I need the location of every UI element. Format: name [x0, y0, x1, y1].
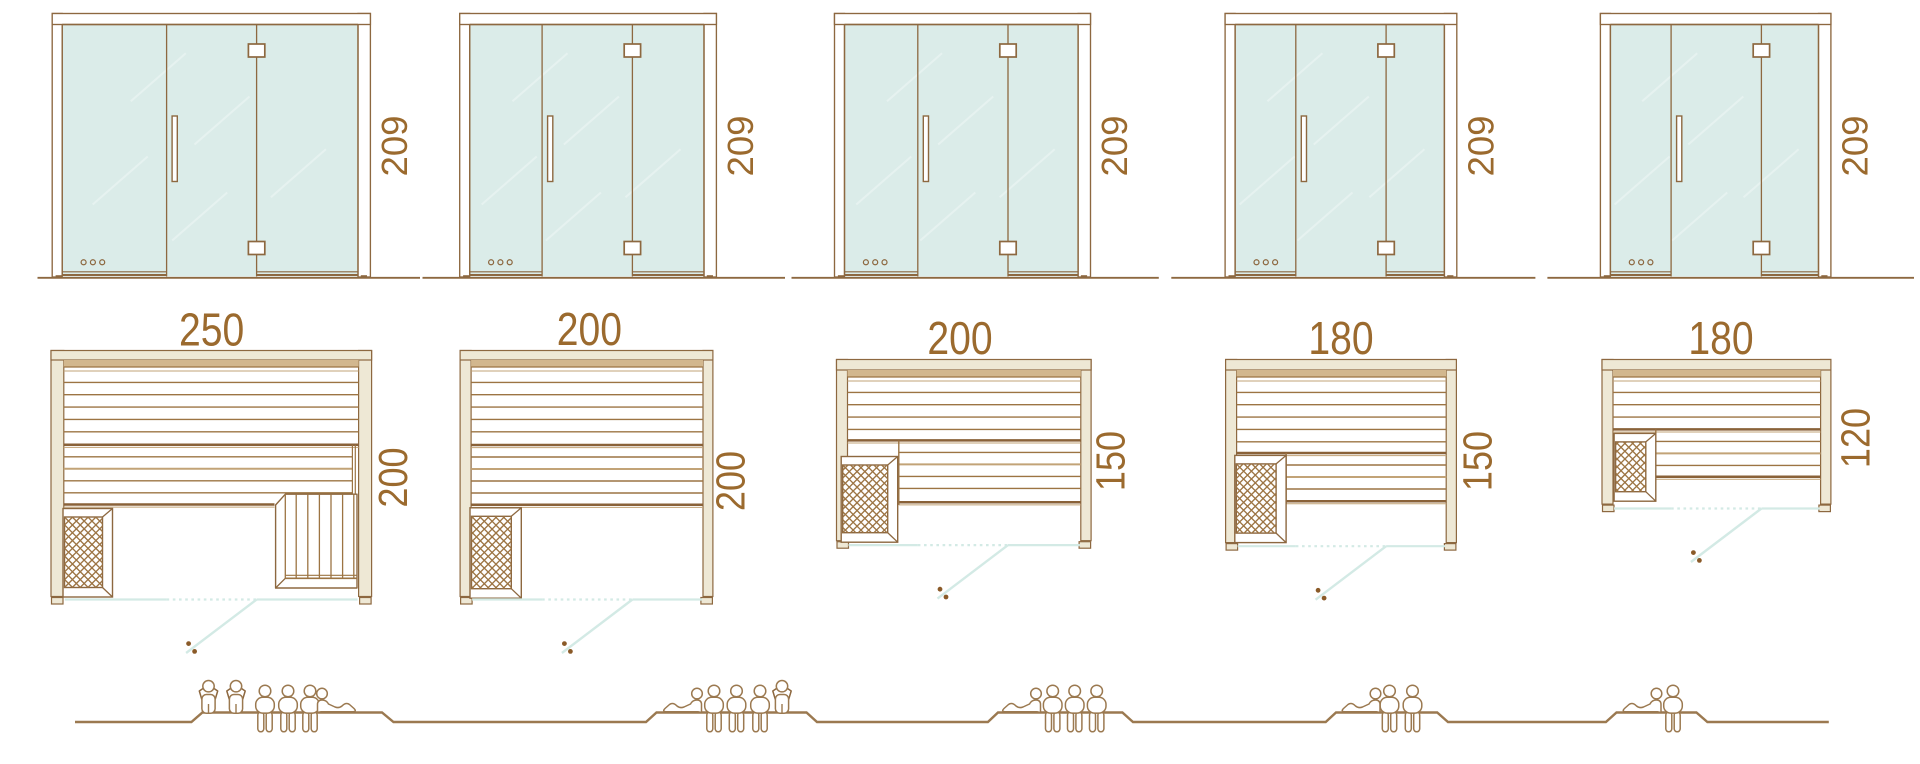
svg-text:209: 209 [1094, 116, 1135, 177]
svg-text:200: 200 [557, 304, 622, 356]
svg-text:150: 150 [1088, 431, 1134, 491]
svg-text:200: 200 [708, 451, 754, 511]
svg-text:180: 180 [1308, 313, 1373, 365]
svg-text:250: 250 [179, 305, 244, 357]
svg-text:209: 209 [374, 116, 415, 177]
svg-text:209: 209 [1834, 116, 1875, 177]
svg-text:209: 209 [720, 116, 761, 177]
svg-text:150: 150 [1455, 431, 1501, 491]
svg-text:120: 120 [1833, 408, 1879, 468]
svg-text:200: 200 [371, 447, 417, 507]
svg-text:209: 209 [1460, 116, 1501, 177]
svg-text:200: 200 [927, 313, 992, 365]
svg-text:180: 180 [1688, 313, 1753, 365]
